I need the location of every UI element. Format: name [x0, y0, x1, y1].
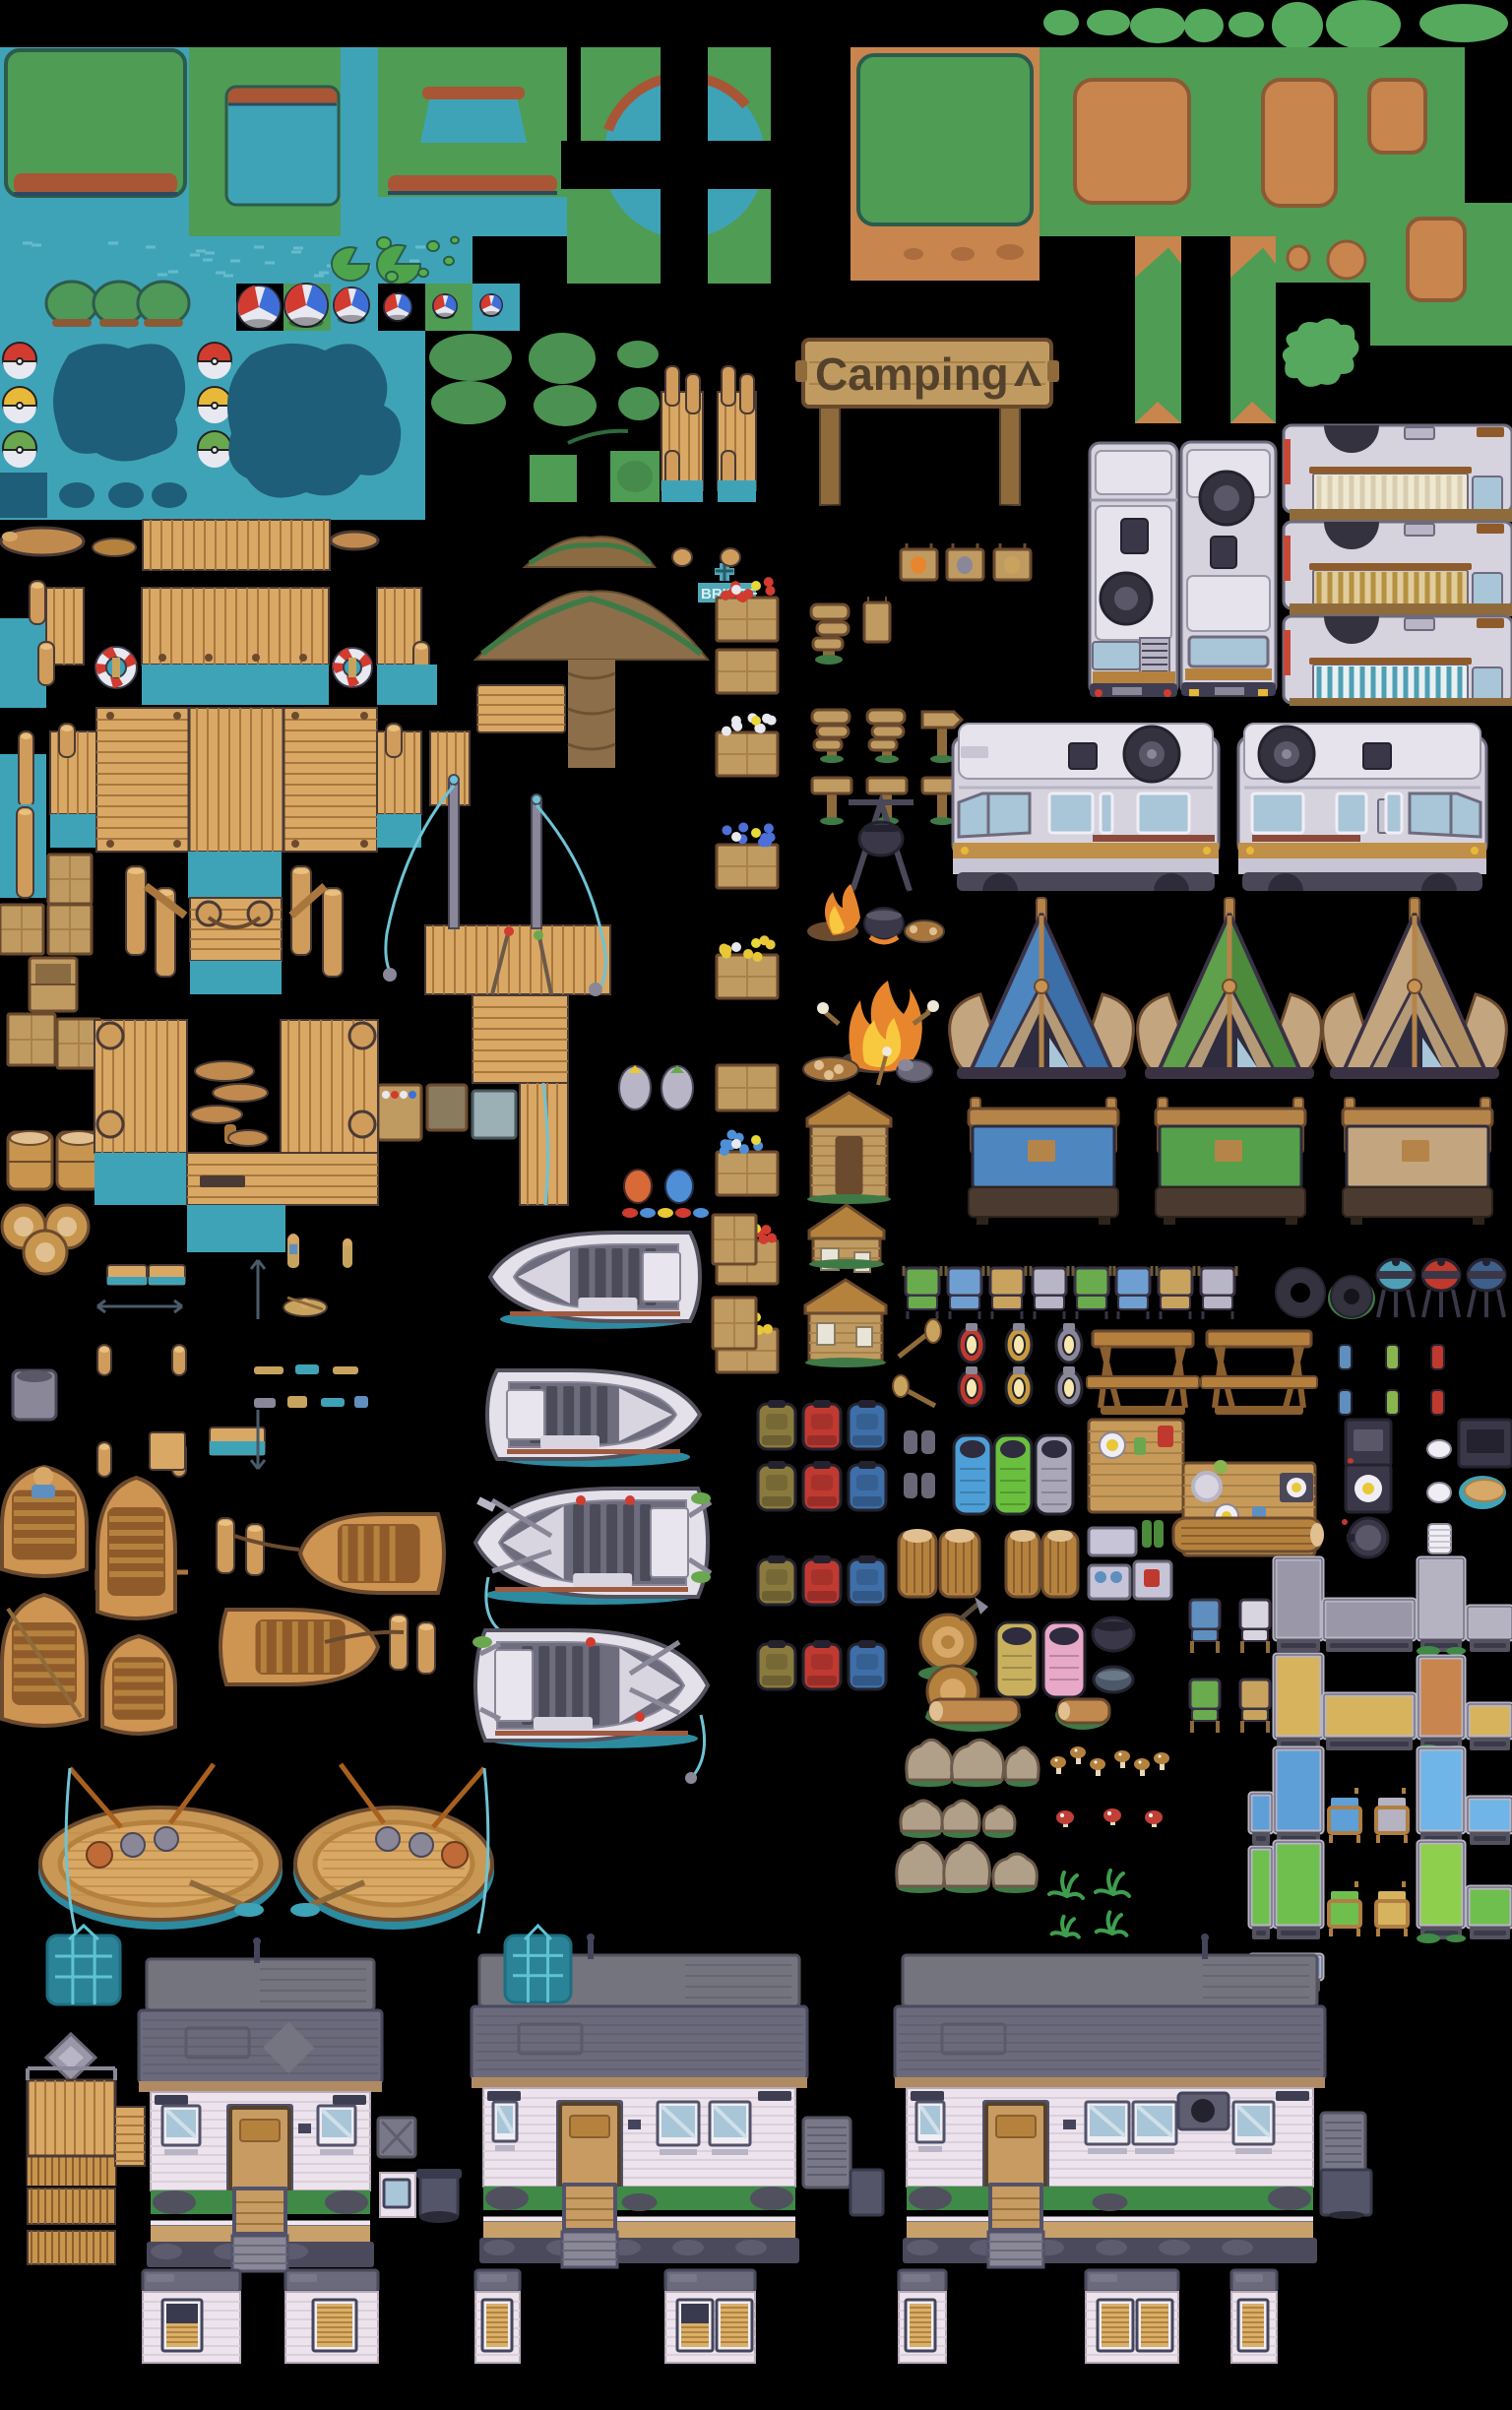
- svg-text:Camping: Camping: [815, 349, 1009, 400]
